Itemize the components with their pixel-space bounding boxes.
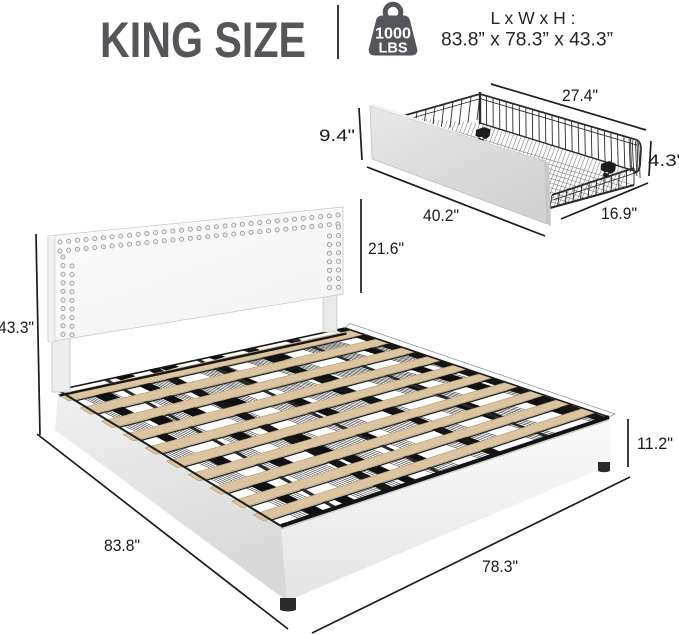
- svg-text:83.8": 83.8": [104, 536, 140, 555]
- svg-text:83.8” x 78.3” x 43.3”: 83.8” x 78.3” x 43.3”: [441, 30, 613, 51]
- svg-text:27.4": 27.4": [562, 86, 598, 105]
- svg-text:9.4": 9.4": [319, 126, 355, 145]
- svg-text:21.6": 21.6": [368, 239, 404, 258]
- svg-text:L x W x H :: L x W x H :: [491, 8, 576, 28]
- svg-text:40.2": 40.2": [423, 206, 459, 225]
- svg-text:11.2": 11.2": [637, 434, 673, 453]
- svg-text:KING SIZE: KING SIZE: [100, 12, 306, 68]
- svg-text:78.3": 78.3": [482, 557, 518, 576]
- svg-text:4.3": 4.3": [648, 151, 679, 170]
- svg-text:43.3": 43.3": [0, 318, 34, 337]
- svg-text:LBS: LBS: [379, 41, 408, 57]
- svg-text:16.9": 16.9": [601, 204, 637, 223]
